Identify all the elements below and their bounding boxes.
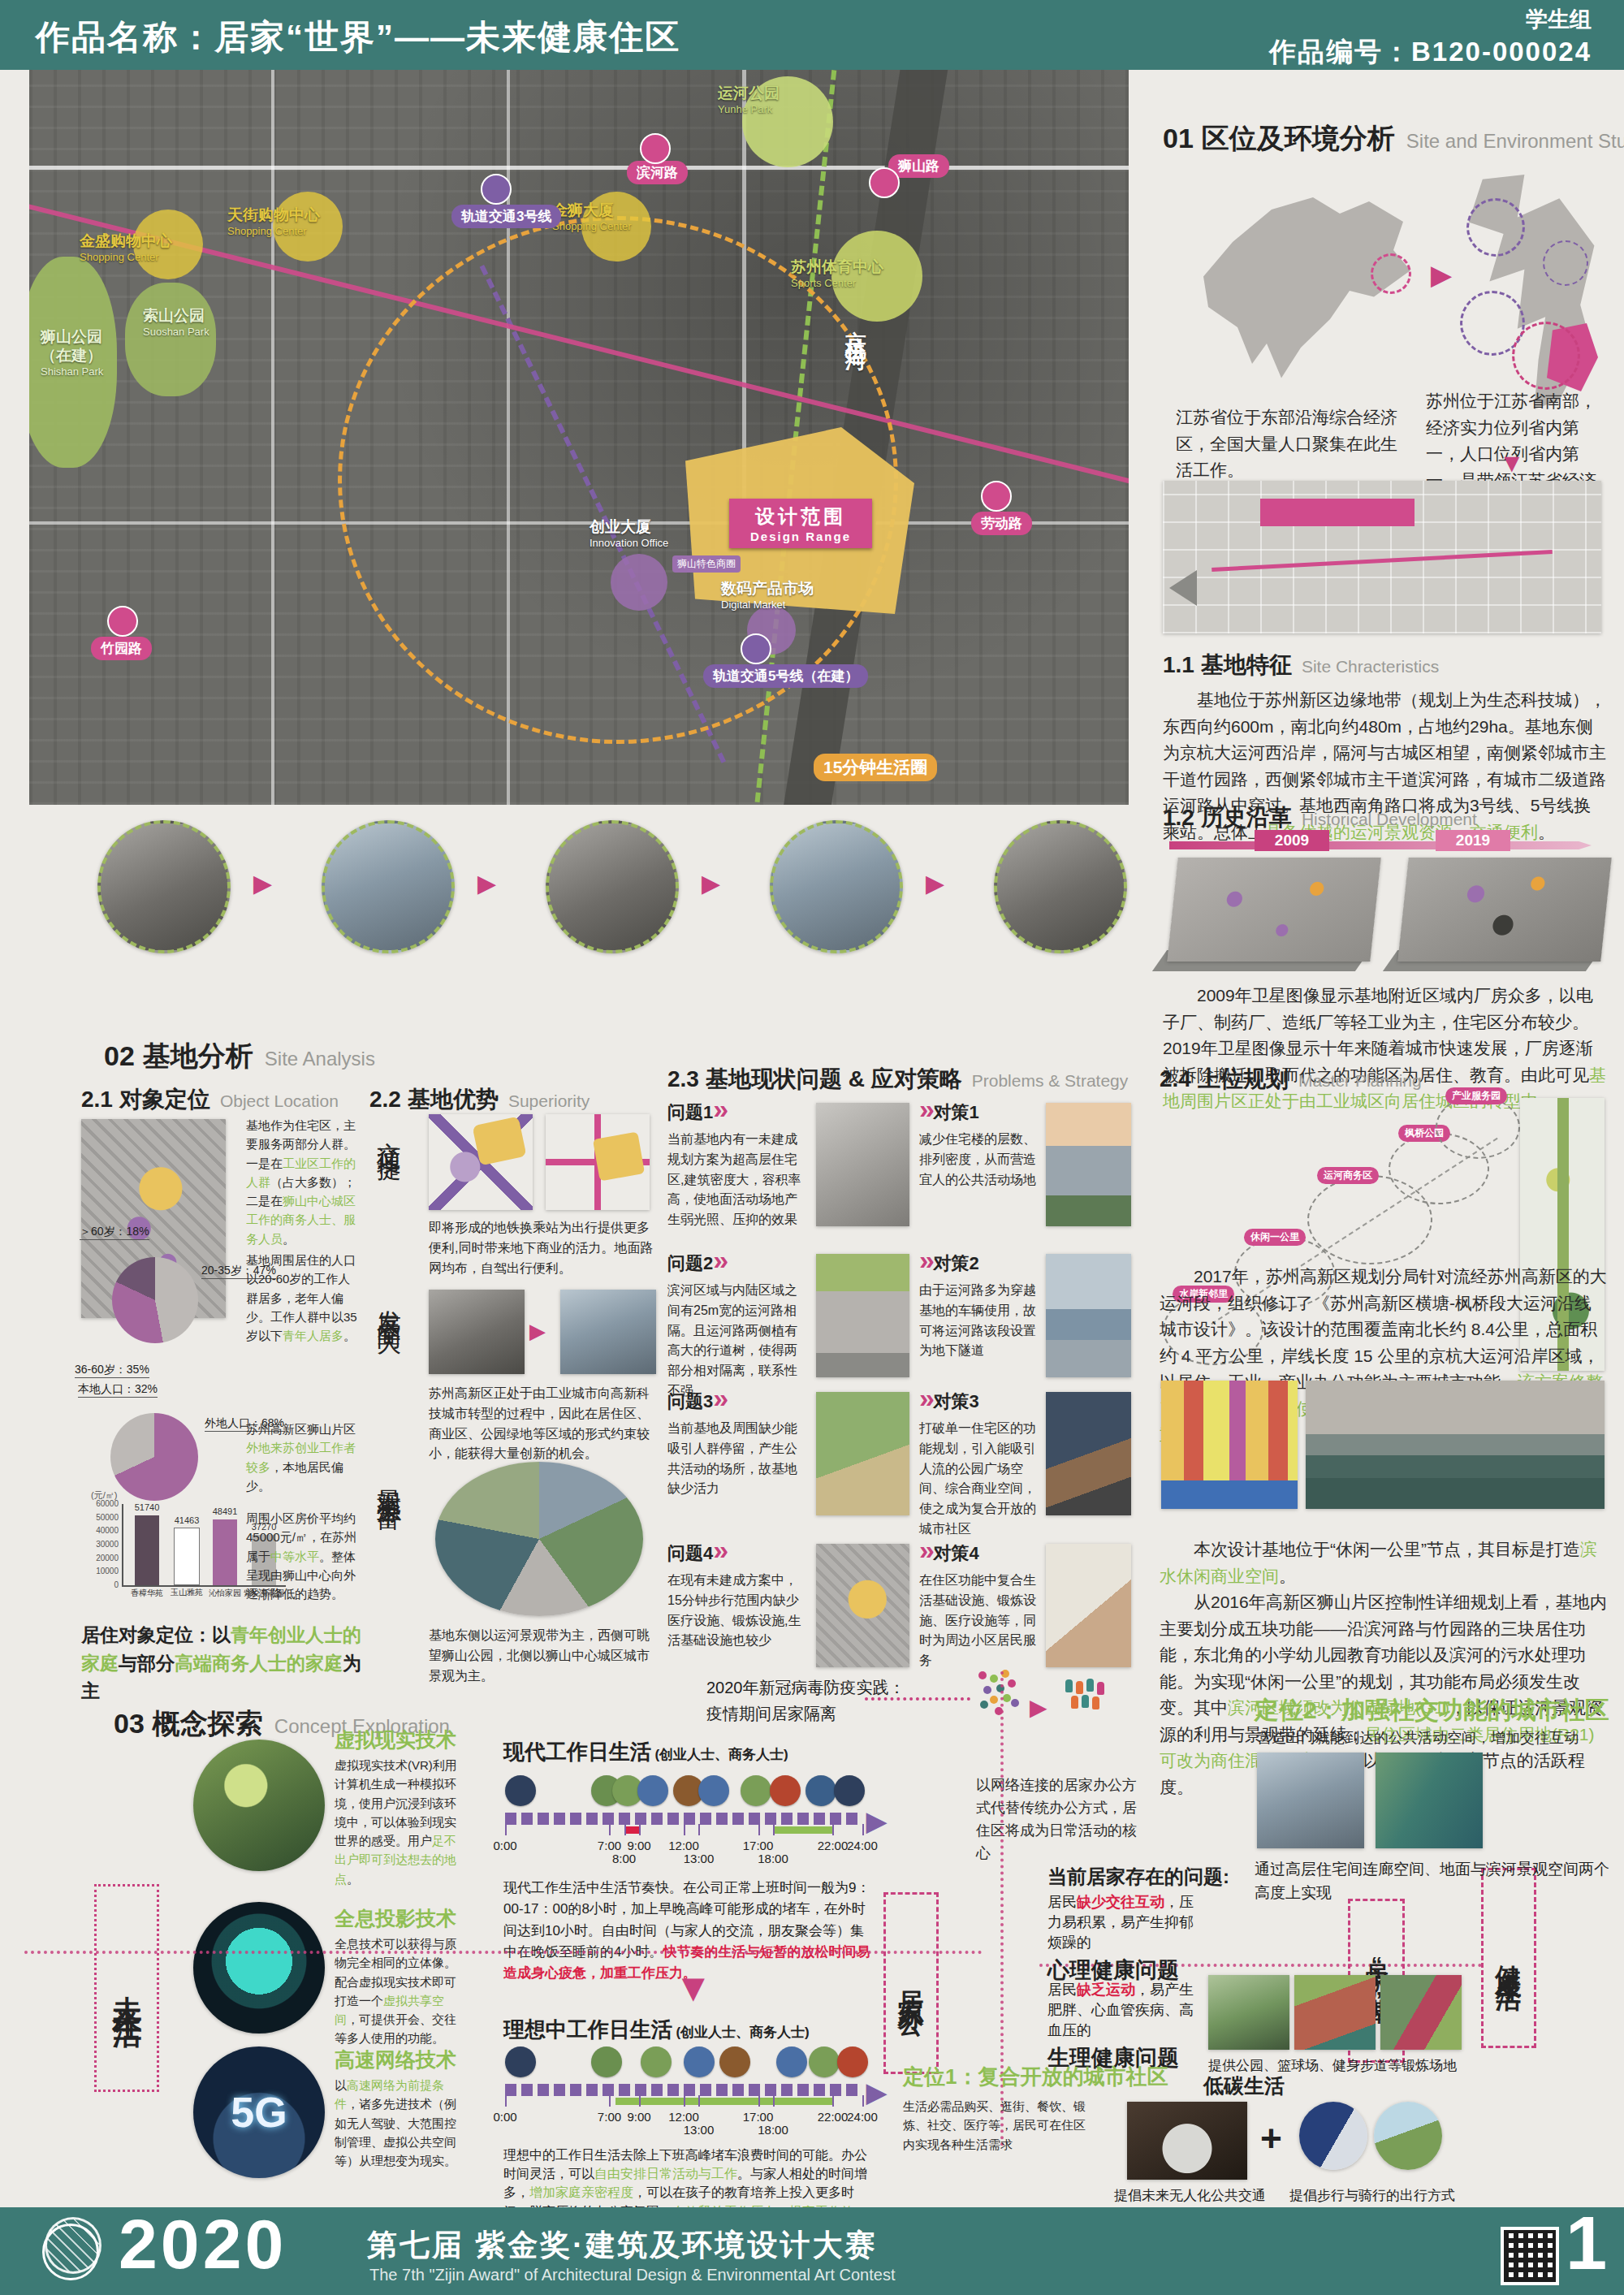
tick-label: 13:00 [684, 1852, 715, 1865]
road-label-laodong: 劳动路 [971, 512, 1032, 535]
space-text: 苏州高新区正处于由工业城市向高新科技城市转型的过程中，因此在居住区、商业区、公园… [429, 1384, 658, 1464]
section-02-heading: 02基地分析Site Analysis [104, 1038, 375, 1075]
tick-label: 17:00 [743, 1839, 774, 1852]
tick-label: 24:00 [847, 1839, 878, 1852]
tick-label: 12:00 [668, 1839, 699, 1852]
map-label-yunhe: 运河公园Yunhe Park [718, 84, 780, 115]
strategy-block: » 对策3 打破单一住宅区的功能规划，引入能吸引人流的公园广场空间、综合商业空间… [919, 1387, 1039, 1540]
tick-label: 17:00 [743, 2110, 774, 2124]
shopper-icon [1299, 2102, 1367, 2170]
arrow-right-icon: ▶ [529, 1319, 546, 1344]
tick [773, 2095, 775, 2107]
satellite-2009-image [1167, 858, 1380, 962]
holo-heading: 全息投影技术 [335, 1905, 456, 1932]
landscape-text: 基地东侧以运河景观带为主，西侧可眺望狮山公园，北侧以狮山中心城区城市景观为主。 [429, 1626, 658, 1686]
walk-caption: 提倡步行与骑行的出行方式 [1289, 2186, 1460, 2205]
footer-title-en: The 7th "Zijin Award" of Architectural D… [369, 2266, 895, 2284]
road-label-zhuyuan: 竹园路 [91, 637, 152, 660]
problem-block: 问题1» 当前基地内有一未建成规划方案为超高层住宅区,建筑密度大，容积率高，使地… [667, 1098, 807, 1230]
dotted-connector [865, 1697, 970, 1701]
year-2019: 2019 [1436, 830, 1510, 851]
metro5-label: 轨道交通5号线（在建） [703, 664, 868, 688]
tick [773, 1824, 775, 1835]
poster-title: 作品名称：居家“世界”——未来健康住区 [36, 15, 680, 60]
arrow-right-icon: ▶ [1431, 258, 1452, 291]
problem-photo [816, 1392, 909, 1515]
tick-label: 0:00 [493, 2110, 516, 2124]
problem-label: 问题4 [667, 1543, 713, 1563]
positioning2-heading: 定位2：加强社交功能的城市社区 [1255, 1694, 1609, 1727]
history-timeline-arrow [1169, 841, 1592, 849]
activity-icon [770, 1775, 801, 1806]
site-satellite-map: 设计范围 Design Range 金盛购物中心Shopping Center … [29, 70, 1129, 805]
y-axis-label: 30000 [86, 1540, 119, 1549]
free-segment [615, 2098, 832, 2105]
tick [862, 1824, 864, 1835]
traffic-text: 即将形成的地铁换乘站为出行提供更多便利,同时带来地下商业的活力。地面路网均布，自… [429, 1218, 658, 1278]
y-axis-label: 20000 [86, 1554, 119, 1562]
history-text: 2009年卫星图像显示基地附近区域内厂房众多，以电子厂、制药厂、造纸厂等轻工业为… [1163, 983, 1608, 1115]
problem-text: 当前基地内有一未建成规划方案为超高层住宅区,建筑密度大，容积率高，使地面活动场地… [667, 1130, 807, 1230]
pie-label: 36-60岁：35% [75, 1363, 149, 1378]
design-range-zh: 设计范围 [729, 504, 872, 529]
tick [505, 2095, 507, 2107]
timeline-bar [505, 1813, 862, 1825]
activity-icon [719, 2046, 750, 2077]
covid-note: 2020年新冠病毒防疫实践： 疫情期间居家隔离 [706, 1675, 905, 1727]
map-label-tianjie: 天街购物中心Shopping Center [227, 206, 320, 237]
y-axis-label: 0 [86, 1580, 119, 1589]
advantage-label-traffic: 交通便捷 [372, 1122, 405, 1142]
tick-label: 18:00 [758, 2123, 788, 2137]
life-circle-label: 15分钟生活圈 [814, 754, 937, 781]
strategy-text: 减少住宅楼的层数、排列密度，从而营造宜人的公共活动场地 [919, 1130, 1039, 1190]
problem-text: 滨河区域与内陆区域之间有25m宽的运河路相隔。且运河路两侧植有高大的行道树，使得… [667, 1281, 807, 1402]
basketball-photo [1294, 1975, 1376, 2050]
home-office-box: 居家办公 [883, 1892, 939, 2074]
timeline1-heading: 现代工作日生活 (创业人士、商务人士) [503, 1738, 788, 1766]
problem-label: 问题2 [667, 1253, 713, 1273]
site-patch [593, 1132, 645, 1182]
rush-segment [624, 1826, 639, 1834]
activity-icon [641, 2046, 672, 2077]
price-text: 周围小区房价平均约45000元/㎡，在苏州属于中等水平。整体呈现由狮山中心向外逐… [246, 1509, 358, 1603]
strategy-label: 对策1 [933, 1102, 978, 1122]
chevrons-icon: » [713, 1382, 723, 1413]
object-location-text: 基地作为住宅区，主要服务两部分人群。一是在工业区工作的人群（占大多数）；二是在狮… [246, 1116, 358, 1248]
origin-pie-chart [110, 1413, 198, 1501]
map-arrow [1169, 570, 1197, 606]
timeline-bar [505, 2084, 862, 2096]
bar-value: 41463 [162, 1515, 211, 1525]
section-1-1-heading: 1.1基地特征Site Chracteristics [1163, 650, 1439, 681]
map-label-jinshi: 金狮大厦Shopping Center [552, 201, 632, 232]
net-heading: 高速网络技术 [335, 2046, 456, 2073]
tick [639, 1824, 641, 1835]
activity-icon [776, 2046, 807, 2077]
site-photo [322, 820, 455, 953]
y-axis-label: 10000 [86, 1567, 119, 1575]
arrow-right-icon: ▶ [926, 869, 944, 897]
advantage-label-space: 发展空间大 [372, 1291, 405, 1316]
city-circle-dashed [1466, 198, 1525, 257]
park-blob [125, 283, 216, 396]
people-icon [1065, 1679, 1073, 1692]
tick [862, 2095, 864, 2107]
plus-sign: + [1260, 2116, 1282, 2160]
home-office-label: 居家办公 [893, 1970, 929, 1996]
strategy-photo [1046, 1544, 1131, 1667]
section-1-2-heading: 1.2历史沿革Historical Development [1163, 802, 1477, 833]
physical-problem-text: 居民缺乏运动，易产生肥胖、心血管疾病、高血压的 生理健康问题 [1047, 1980, 1202, 2073]
pie-label: ＞60岁：18% [80, 1225, 149, 1240]
bar: 41463玉山雅苑 [174, 1528, 200, 1585]
chevrons-icon: » [919, 1534, 930, 1565]
metro-icon [481, 174, 512, 205]
chevrons-icon: » [713, 1534, 723, 1565]
residence-positioning: 居住对象定位：以青年创业人士的家庭与部分高端商务人士的家庭为主 [81, 1621, 374, 1705]
home-problems-heading: 当前居家存在的问题: [1047, 1864, 1229, 1890]
tick-label: 7:00 [598, 1839, 621, 1852]
bus-icon [869, 167, 900, 198]
footer-title-zh: 第七届 紫金奖·建筑及环境设计大赛 [367, 2225, 878, 2266]
tick [609, 1824, 611, 1835]
age-pie-chart [112, 1257, 198, 1343]
riverside-photo [1376, 1753, 1483, 1848]
arrow-right-icon: ▶ [253, 869, 272, 897]
positioning2-caption: 通过高层住宅间连廊空间、地面与滨河景观空间两个高度上实现 [1255, 1858, 1612, 1904]
strategy-block: » 对策4 在住区功能中复合生活基础设施、锻炼设施、医疗设施等，同时为周边小区居… [919, 1539, 1039, 1671]
activity-icon [834, 1775, 865, 1806]
tick-label: 13:00 [684, 2123, 715, 2137]
site-structure-map [1163, 481, 1601, 633]
problem-photo [816, 1103, 909, 1226]
award-logo-icon [45, 2217, 101, 2274]
activity-icon [741, 1775, 771, 1806]
map-label-shishan-park: 狮山公园（在建）Shishan Park [41, 328, 114, 378]
low-carbon-heading: 低碳生活 [1203, 2072, 1285, 2099]
map-label-canal: 京杭运河 [843, 313, 868, 339]
strategy-text: 在住区功能中复合生活基础设施、锻炼设施、医疗设施等，同时为周边小区居民服务 [919, 1571, 1039, 1671]
design-range-en: Design Range [729, 529, 872, 543]
problem-photo [816, 1544, 909, 1667]
city-circle-dashed [1512, 322, 1580, 390]
map-label-innovation: 创业大厦Innovation Office [590, 518, 668, 549]
track-photo [1380, 1975, 1462, 2050]
strategy-photo [1046, 1254, 1131, 1377]
map-label-jinsheng: 金盛购物中心Shopping Center [80, 232, 172, 263]
hologram-photo [193, 1902, 325, 2034]
chevrons-icon: » [713, 1244, 723, 1275]
node-ellipse: 产业服务园 [1436, 1096, 1520, 1159]
problem-text: 当前基地及周围缺少能吸引人群停留，产生公共活动的场所，故基地缺少活力 [667, 1419, 807, 1499]
bus-caption: 提倡未来无人化公共交通 [1114, 2186, 1268, 2205]
strategy-text: 由于运河路多为穿越基地的车辆使用，故可将运河路该段设置为地下隧道 [919, 1281, 1039, 1361]
arrow-right-icon: ▶ [866, 1804, 887, 1837]
tick-label: 8:00 [612, 1852, 636, 1865]
free-segment [773, 1826, 832, 1834]
section-number: 01 [1163, 123, 1194, 153]
mental-problem-text: 居民缺少交往互动，压力易积累，易产生抑郁烦躁的 心理健康问题 [1047, 1892, 1202, 1986]
tick [639, 2095, 641, 2107]
cyclist-icon [1374, 2102, 1442, 2170]
strategy-block: » 对策2 由于运河路多为穿越基地的车辆使用，故可将运河路该段设置为地下隧道 [919, 1249, 1039, 1361]
tick-label: 22:00 [818, 2110, 849, 2124]
tick [832, 2095, 834, 2107]
site-photo [770, 820, 903, 953]
tick [832, 1824, 834, 1835]
arrow-right-icon: ▶ [1030, 1694, 1047, 1721]
age-structure-text: 基地周围居住的人口以20-60岁的工作人群居多，老年人偏少。工作人群中以35岁以… [246, 1251, 358, 1345]
origin-text: 苏州高新区狮山片区外地来苏创业工作者较多，本地居民偏少。 [246, 1420, 358, 1495]
qr-code [1501, 2227, 1559, 2285]
problem-block: 问题3» 当前基地及周围缺少能吸引人群停留，产生公共活动的场所，故基地缺少活力 [667, 1387, 807, 1499]
net-text: 以高速网络为前提条件，诸多先进技术（例如无人驾驶、大范围控制管理、虚拟公共空间等… [335, 2076, 463, 2170]
map-label-digital: 数码产品市场Digital Market [721, 580, 814, 611]
bar: 48491沁怡家园 [213, 1519, 237, 1585]
future-life-box: 未来生活 [94, 1884, 159, 2092]
landscape-collage [435, 1462, 643, 1616]
problem-block: 问题2» 滨河区域与内陆区域之间有25m宽的运河路相隔。且运河路两侧植有高大的行… [667, 1249, 807, 1402]
tick [698, 1824, 700, 1835]
pie-label: 本地人口：32% [78, 1382, 158, 1398]
strategy-label: 对策4 [933, 1543, 978, 1563]
map-label-suoshan-park: 索山公园Suoshan Park [143, 307, 209, 338]
china-map-site-circle [1371, 253, 1411, 294]
chevrons-icon: » [713, 1093, 723, 1124]
autonomous-bus-photo [1127, 2102, 1247, 2180]
strategy-label: 对策3 [933, 1391, 978, 1411]
problem-text: 在现有未建成方案中，15分钟步行范围内缺少医疗设施、锻炼设施,生活基础设施也较少 [667, 1571, 807, 1651]
section-2-3-heading: 2.3基地现状问题 & 应对策略Problems & Strategy [667, 1064, 1128, 1095]
map-label-shangquan: 狮山特色商圈 [672, 555, 741, 573]
problem-photo [816, 1254, 909, 1377]
strategy-photo [1046, 1103, 1131, 1226]
tick [698, 2095, 700, 2107]
y-axis-label: 40000 [86, 1526, 119, 1535]
road-line [29, 166, 1129, 170]
page-number: 1 [1566, 2201, 1607, 2286]
section-01-heading: 01区位及环境分析Site and Environment Study [1163, 120, 1624, 158]
site-photo [97, 820, 231, 953]
traffic-diagram-2 [546, 1114, 650, 1210]
hightech-photo [560, 1290, 656, 1374]
healthy-life-label: 健康生活 [1491, 1945, 1527, 1971]
footer-band: 2020 第七届 紫金奖·建筑及环境设计大赛 The 7th "Zijin Aw… [0, 2207, 1624, 2295]
canal-aerial-photo [1306, 1381, 1605, 1509]
strategy-text: 打破单一住宅区的功能规划，引入能吸引人流的公园广场空间、综合商业空间，使之成为复… [919, 1419, 1039, 1540]
arrow-down-icon: ▼ [674, 1965, 713, 2010]
activity-icon [837, 2046, 868, 2077]
design-range-label: 设计范围 Design Range [729, 499, 872, 548]
site-photo [994, 820, 1127, 953]
header-band: 作品名称：居家“世界”——未来健康住区 学生组 作品编号：B120-000024 [0, 0, 1624, 70]
site-photo [546, 820, 679, 953]
positioning2-sub: 营造出门就能到达的公共活动空间，增加交往互动 [1257, 1728, 1614, 1748]
map-label-sports: 苏州体育中心Sports Center [791, 258, 883, 289]
arrow-down-icon: ▼ [1499, 448, 1525, 478]
highlight-bar [1260, 499, 1415, 526]
positioning1-heading: 定位1：复合开放的城市社区 [903, 2063, 1168, 2091]
tick-label: 9:00 [627, 2110, 650, 2124]
activity-icon [505, 2046, 536, 2077]
tick [684, 2095, 685, 2107]
timeline1: 0:007:008:009:0012:0013:0017:0018:0022:0… [505, 1813, 862, 1825]
tick-label: 0:00 [493, 1839, 516, 1852]
arrow-right-icon: ▶ [477, 869, 496, 897]
satellite-2019-image [1397, 858, 1611, 962]
poi-circle [611, 554, 667, 611]
activity-icon [505, 1775, 536, 1806]
section-2-2-heading: 2.2基地优势Superiority [369, 1084, 590, 1115]
activity-icon [637, 1775, 668, 1806]
bus-icon [640, 133, 671, 164]
tick-label: 24:00 [847, 2110, 878, 2124]
strategy-label: 对策2 [933, 1253, 978, 1273]
advantage-label-landscape: 景观资源丰富 [372, 1470, 405, 1489]
tick [758, 1824, 760, 1835]
year-2009: 2009 [1255, 830, 1329, 851]
tick-label: 7:00 [598, 2110, 621, 2124]
site-photo-strip: ▶ ▶ ▶ ▶ [29, 812, 1129, 975]
section-2-4-heading: 2.4上位规划Master Planning [1160, 1064, 1422, 1095]
positioning1-sub: 生活必需品购买、逛街、餐饮、锻炼、社交、医疗等，居民可在住区内实现各种生活需求 [903, 2097, 1090, 2154]
y-axis-label: 50000 [86, 1513, 119, 1522]
molecule-icon [978, 1671, 987, 1679]
bus-icon [107, 606, 138, 637]
strategy-photo [1046, 1392, 1131, 1515]
5g-photo: 5G [193, 2046, 325, 2178]
chevrons-icon: » [919, 1382, 930, 1413]
activity-icon [698, 1775, 729, 1806]
problem-block: 问题4» 在现有未建成方案中，15分钟步行范围内缺少医疗设施、锻炼设施,生活基础… [667, 1539, 807, 1651]
tick-label: 18:00 [758, 1852, 788, 1865]
strategy-block: » 对策1 减少住宅楼的层数、排列密度，从而营造宜人的公共活动场地 [919, 1098, 1039, 1190]
tick-label: 12:00 [668, 2110, 699, 2124]
road-line [271, 70, 274, 805]
tick [624, 1824, 626, 1835]
tick [758, 2095, 760, 2107]
highlight-line [1212, 550, 1553, 572]
bar-value: 48491 [201, 1506, 249, 1516]
city-circle-dashed [1543, 240, 1588, 286]
vr-heading: 虚拟现实技术 [335, 1727, 456, 1753]
axis-unit-label: (元/㎡) [91, 1489, 117, 1502]
tick-label: 22:00 [818, 1839, 849, 1852]
jiangsu-caption: 江苏省位于东部沿海综合经济区，全国大量人口聚集在此生活工作。 [1176, 404, 1411, 484]
chevrons-icon: » [919, 1093, 930, 1124]
future-life-label: 未来生活 [107, 1972, 147, 2004]
tower-link-photo [1257, 1753, 1364, 1848]
entry-group: 学生组 [1526, 5, 1592, 34]
activity-icon [684, 2046, 715, 2077]
park-photo [1208, 1975, 1289, 2050]
timeline2: 0:007:009:0012:0013:0017:0018:0022:0024:… [505, 2084, 862, 2096]
chevrons-icon: » [919, 1244, 930, 1275]
arrow-right-icon: ▶ [866, 2076, 887, 2108]
vr-photo [193, 1740, 325, 1871]
vr-text: 虚拟现实技术(VR)利用计算机生成一种模拟环境，使用户沉浸到该环境中，可以体验到… [335, 1756, 463, 1888]
timeline2-heading: 理想中工作日生活 (创业人士、商务人士) [503, 2016, 810, 2044]
bar: 51740香樟华苑 [135, 1515, 159, 1585]
footer-year: 2020 [119, 2204, 287, 2284]
bus-icon [981, 481, 1012, 512]
section-2-1-heading: 2.1对象定位Object Location [81, 1084, 339, 1115]
traffic-diagram-1 [429, 1114, 533, 1210]
activity-icon [591, 2046, 622, 2077]
tick [684, 1824, 685, 1835]
arrow-right-icon: ▶ [702, 869, 720, 897]
industry-photo [429, 1290, 525, 1374]
metro-icon [741, 633, 771, 664]
metro3-label: 轨道交通3号线 [451, 205, 561, 228]
problem-label: 问题3 [667, 1391, 713, 1411]
site-patch [472, 1117, 526, 1166]
entry-number: 作品编号：B120-000024 [1269, 34, 1592, 71]
landuse-map [1161, 1381, 1298, 1509]
tick [609, 2095, 611, 2107]
activity-icon [809, 2046, 840, 2077]
bar-value: 51740 [123, 1502, 171, 1512]
poster: 作品名称：居家“世界”——未来健康住区 学生组 作品编号：B120-000024… [0, 0, 1624, 2295]
dotted-connector [24, 1951, 983, 1954]
problem-label: 问题1 [667, 1102, 713, 1122]
tick-label: 9:00 [627, 1839, 650, 1852]
5g-badge: 5G [231, 2088, 287, 2137]
road-label-binhe: 滨河路 [627, 161, 688, 184]
tick [505, 1824, 507, 1835]
activity-icon [806, 1775, 836, 1806]
